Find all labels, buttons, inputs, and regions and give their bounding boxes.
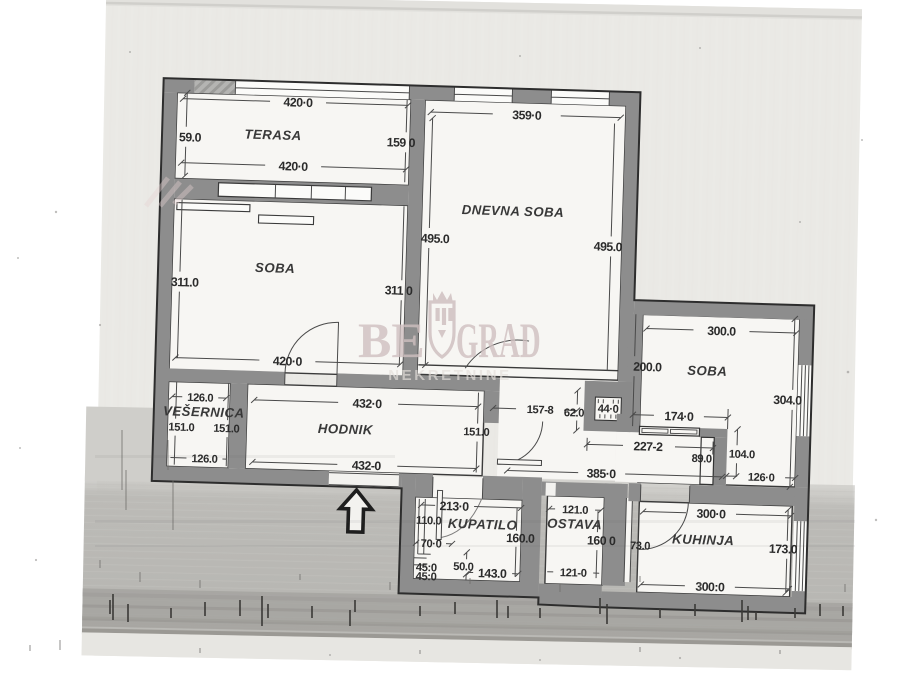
svg-text:143.0: 143.0 [478,566,507,581]
svg-text:311 0: 311 0 [384,283,413,298]
svg-text:304.0: 304.0 [773,393,802,408]
svg-text:NEKRETNINE: NEKRETNINE [388,367,512,384]
svg-text:495.0: 495.0 [421,231,450,246]
svg-text:45:0: 45:0 [415,571,436,584]
svg-text:104.0: 104.0 [729,449,756,462]
svg-text:OSTAVA: OSTAVA [547,516,602,533]
svg-text:311.0: 311.0 [171,275,200,290]
svg-text:420·0: 420·0 [278,159,308,174]
svg-text:227-2: 227-2 [633,439,663,454]
svg-text:420·0: 420·0 [283,95,313,110]
svg-text:KUPATILO: KUPATILO [448,516,518,533]
svg-text:89.0: 89.0 [691,453,712,466]
svg-text:SOBA: SOBA [255,260,296,276]
svg-text:173.0: 173.0 [769,542,798,557]
svg-text:151.0: 151.0 [213,423,240,436]
svg-text:126·0: 126·0 [748,472,775,485]
svg-text:HODNIK: HODNIK [318,421,374,438]
svg-text:SOBA: SOBA [687,363,728,379]
svg-text:44·0: 44·0 [597,403,618,416]
svg-text:157-8: 157-8 [527,404,554,417]
svg-text:121-0: 121-0 [560,567,587,580]
svg-text:495.0: 495.0 [594,239,623,254]
svg-text:359·0: 359·0 [512,108,542,123]
svg-text:121.0: 121.0 [562,504,589,517]
svg-text:300·0: 300·0 [696,507,726,522]
svg-text:432-0: 432-0 [352,458,382,473]
svg-text:126.0: 126.0 [187,392,214,405]
svg-text:70·0: 70·0 [420,538,441,551]
svg-text:151.0: 151.0 [463,426,490,439]
svg-text:50.0: 50.0 [453,561,474,574]
svg-text:385·0: 385·0 [586,466,616,481]
svg-text:151.0: 151.0 [168,421,195,434]
svg-text:DNEVNA SOBA: DNEVNA SOBA [461,202,564,220]
svg-text:VEŠERNICA: VEŠERNICA [163,403,245,420]
svg-text:432·0: 432·0 [352,396,382,411]
svg-text:213·0: 213·0 [439,499,469,514]
svg-text:BE: BE [358,312,425,368]
svg-text:174·0: 174·0 [664,409,694,424]
svg-text:TERASA: TERASA [244,127,302,144]
svg-text:GRAD: GRAD [456,313,541,368]
svg-text:420·0: 420·0 [273,354,303,369]
svg-text:300.0: 300.0 [707,324,736,339]
svg-text:160.0: 160.0 [506,531,535,546]
svg-text:200.0: 200.0 [633,360,662,375]
svg-text:62.0: 62.0 [564,407,585,420]
svg-text:159 0: 159 0 [387,135,416,150]
svg-text:59.0: 59.0 [179,130,202,145]
